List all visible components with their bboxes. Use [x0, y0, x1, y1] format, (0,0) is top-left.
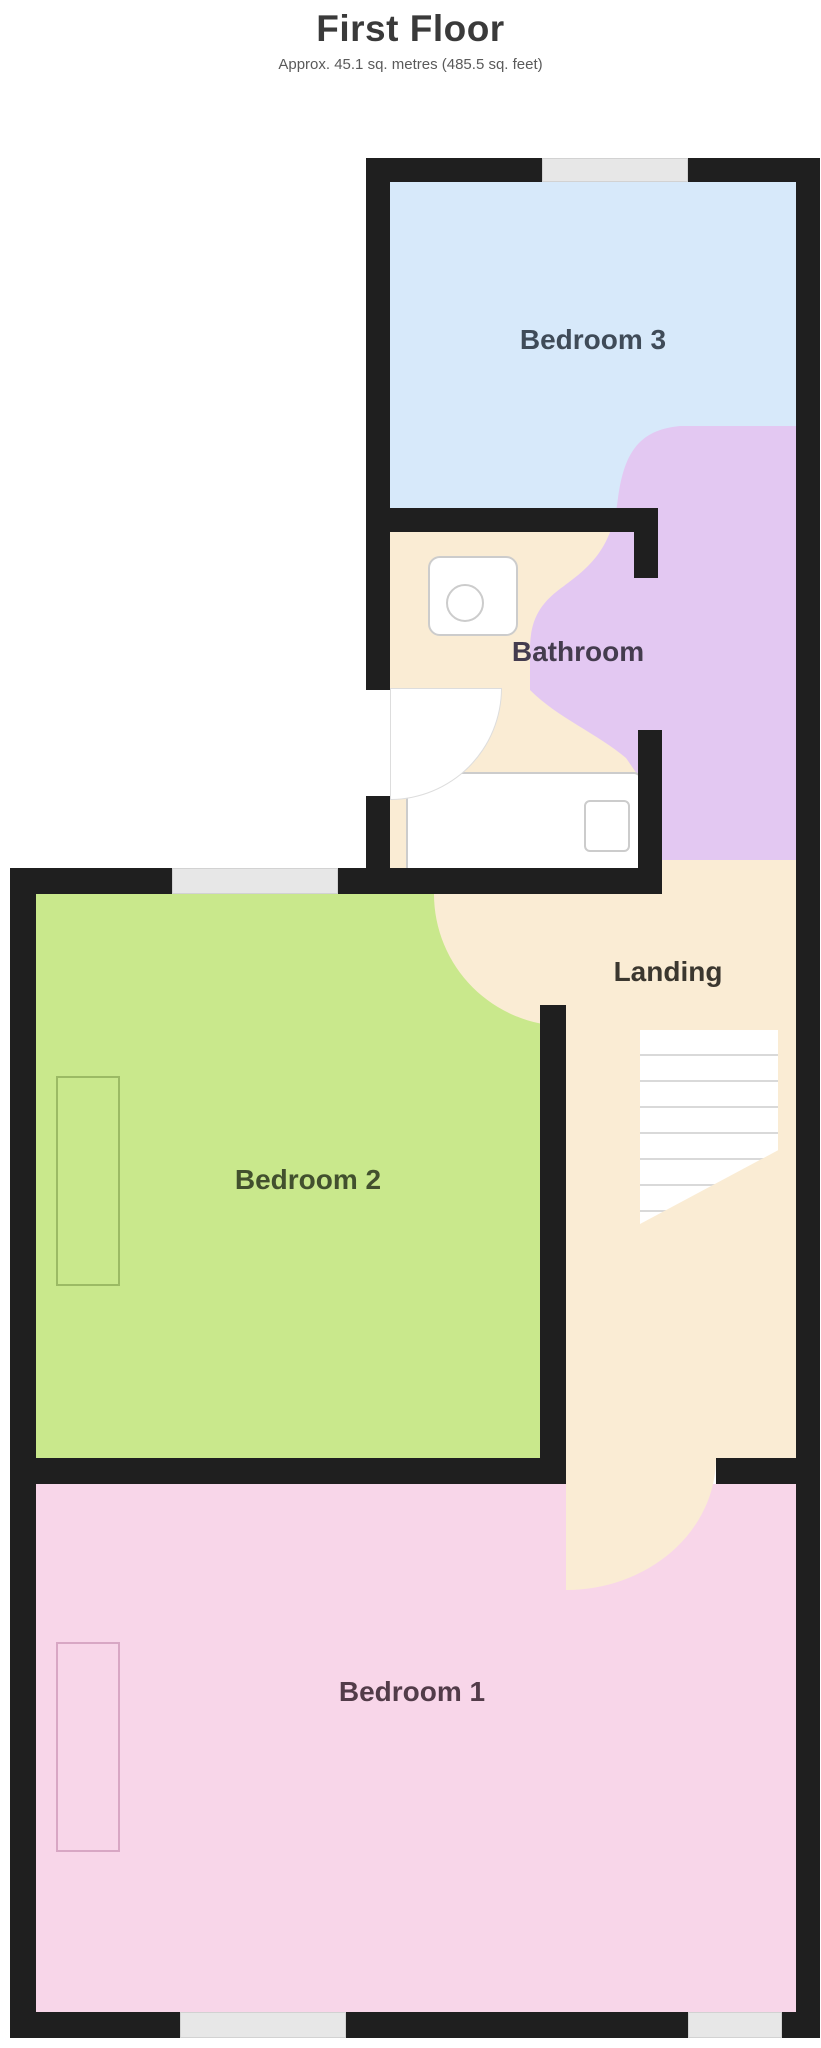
wall-bottom-seg3: [782, 2012, 820, 2038]
room-label-bedroom3: Bedroom 3: [520, 324, 666, 356]
room-bedroom1-floor: [36, 1484, 796, 2012]
wall-bedroom2-landing: [540, 1005, 566, 1458]
wall-stub-bathroom-upper: [634, 508, 658, 578]
window-bedroom3: [542, 158, 688, 182]
window-bedroom2: [172, 868, 338, 894]
wall-bottom-seg1: [10, 2012, 180, 2038]
wall-right-full: [796, 158, 820, 2038]
window-bedroom1-right: [688, 2012, 782, 2038]
room-label-landing: Landing: [614, 956, 723, 988]
plan-subtitle: Approx. 45.1 sq. metres (485.5 sq. feet): [0, 56, 821, 73]
wall-bedrooms-divider-right: [716, 1458, 796, 1484]
room-label-bedroom2: Bedroom 2: [235, 1164, 381, 1196]
room-label-bathroom: Bathroom: [512, 636, 644, 668]
window-bedroom1-left: [180, 2012, 346, 2038]
plan-title: First Floor: [0, 8, 821, 50]
floorplan-canvas: First Floor Approx. 45.1 sq. metres (485…: [0, 0, 821, 2048]
wall-lower-left: [10, 868, 36, 2038]
wall-bedroom3-bathroom: [366, 508, 658, 532]
toilet-bowl-circle: [446, 584, 484, 622]
room-label-bedroom1: Bedroom 1: [339, 1676, 485, 1708]
wall-bottom-seg2: [346, 2012, 688, 2038]
door-gap-bathroom: [366, 690, 390, 796]
bathtub-tap-box: [584, 800, 630, 852]
landing-upper-connector: [662, 860, 796, 896]
wall-upper-top-left: [366, 158, 542, 182]
chimney-breast-outline-bedroom1: [56, 1642, 120, 1852]
wall-bedrooms-divider-left: [10, 1458, 566, 1484]
chimney-breast-outline-bedroom2: [56, 1076, 120, 1286]
wall-lower-top-seg2: [338, 868, 662, 894]
